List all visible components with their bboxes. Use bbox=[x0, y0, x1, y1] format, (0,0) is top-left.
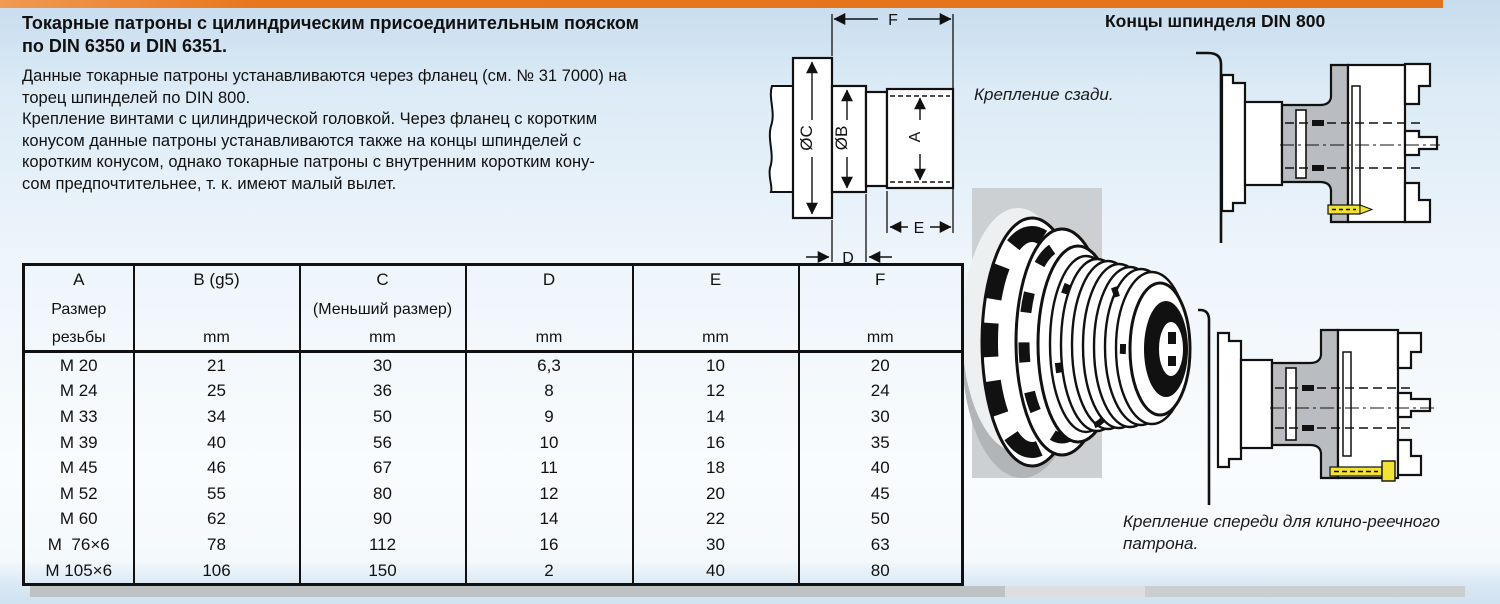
cell-thread: M 76×6 bbox=[24, 532, 134, 558]
col-b-unit: mm bbox=[203, 329, 230, 347]
cell-thread: M 105×6 bbox=[24, 558, 134, 585]
cell-e: 14 bbox=[633, 404, 799, 430]
cell-c: 112 bbox=[300, 532, 466, 558]
cell-thread: M 45 bbox=[24, 455, 134, 481]
cell-e: 30 bbox=[633, 532, 799, 558]
col-header-e: E mm bbox=[633, 265, 799, 352]
caption-front-line2: патрона. bbox=[1123, 533, 1440, 555]
caption-front-line1: Крепление спереди для клино-реечного bbox=[1123, 511, 1440, 533]
cell-e: 16 bbox=[633, 430, 799, 456]
col-d-letter: D bbox=[543, 270, 555, 290]
cell-thread: M 39 bbox=[24, 430, 134, 456]
cell-d: 6,3 bbox=[466, 352, 633, 379]
cell-thread: M 33 bbox=[24, 404, 134, 430]
dim-label-oc: ØC bbox=[797, 125, 816, 151]
intro-text-block: Токарные патроны с цилиндрическим присое… bbox=[22, 12, 639, 195]
col-e-letter: E bbox=[710, 270, 721, 290]
dimensions-table: A Размер резьбы B (g5) mm C (Меньший раз… bbox=[22, 263, 964, 586]
cell-c: 36 bbox=[300, 379, 466, 405]
cell-f: 63 bbox=[799, 532, 963, 558]
dim-label-ob: ØB bbox=[832, 126, 851, 151]
cell-f: 20 bbox=[799, 352, 963, 379]
cell-c: 150 bbox=[300, 558, 466, 585]
col-a-sub2: резьбы bbox=[52, 329, 106, 347]
table-row: M 52 55 80 12 20 45 bbox=[24, 481, 963, 507]
table-row: M 39 40 56 10 16 35 bbox=[24, 430, 963, 456]
cell-d: 12 bbox=[466, 481, 633, 507]
cell-thread: M 20 bbox=[24, 352, 134, 379]
chuck-drawing-front bbox=[1195, 300, 1440, 510]
col-c-letter: C bbox=[376, 270, 388, 290]
dimension-diagram: F ØC ØB A E D bbox=[753, 5, 967, 270]
cell-d: 16 bbox=[466, 532, 633, 558]
cell-b: 25 bbox=[134, 379, 300, 405]
col-d-unit: mm bbox=[536, 329, 563, 347]
col-header-b: B (g5) mm bbox=[134, 265, 300, 352]
cell-e: 18 bbox=[633, 455, 799, 481]
cell-b: 55 bbox=[134, 481, 300, 507]
dim-label-e: E bbox=[914, 220, 925, 237]
cell-d: 9 bbox=[466, 404, 633, 430]
col-f-unit: mm bbox=[867, 329, 894, 347]
cell-e: 20 bbox=[633, 481, 799, 507]
chuck-drawing-rear bbox=[1190, 42, 1445, 247]
cell-b: 40 bbox=[134, 430, 300, 456]
page-title-line1: Токарные патроны с цилиндрическим присое… bbox=[22, 12, 639, 35]
cell-c: 50 bbox=[300, 404, 466, 430]
col-header-d: D mm bbox=[466, 265, 633, 352]
intro-line: коротким конусом, однако токарные патрон… bbox=[22, 152, 639, 174]
cell-f: 30 bbox=[799, 404, 963, 430]
table-row: M 45 46 67 11 18 40 bbox=[24, 455, 963, 481]
cell-f: 35 bbox=[799, 430, 963, 456]
dim-label-f: F bbox=[888, 12, 898, 29]
cell-d: 11 bbox=[466, 455, 633, 481]
cell-c: 90 bbox=[300, 507, 466, 533]
table-row: M 105×6 106 150 2 40 80 bbox=[24, 558, 963, 585]
chuck-rear-shapes bbox=[1196, 53, 1437, 243]
cell-d: 10 bbox=[466, 430, 633, 456]
col-b-letter: B (g5) bbox=[193, 270, 239, 290]
col-e-unit: mm bbox=[702, 329, 729, 347]
table-row: M 76×6 78 112 16 30 63 bbox=[24, 532, 963, 558]
cell-f: 80 bbox=[799, 558, 963, 585]
cell-thread: M 24 bbox=[24, 379, 134, 405]
bottom-divider-bar bbox=[30, 586, 1005, 597]
cell-f: 45 bbox=[799, 481, 963, 507]
table-header-row: A Размер резьбы B (g5) mm C (Меньший раз… bbox=[24, 265, 963, 352]
cell-b: 78 bbox=[134, 532, 300, 558]
col-header-c: C (Меньший размер) mm bbox=[300, 265, 466, 352]
col-a-sub1: Размер bbox=[51, 301, 106, 319]
cell-d: 8 bbox=[466, 379, 633, 405]
col-a-letter: A bbox=[73, 270, 84, 290]
page-title: Токарные патроны с цилиндрическим присое… bbox=[22, 12, 639, 58]
cell-c: 67 bbox=[300, 455, 466, 481]
catalog-page: Токарные патроны с цилиндрическим присое… bbox=[0, 0, 1500, 604]
cell-d: 2 bbox=[466, 558, 633, 585]
col-f-letter: F bbox=[875, 270, 885, 290]
intro-line: Данные токарные патроны устанавливаются … bbox=[22, 66, 639, 88]
cell-thread: M 52 bbox=[24, 481, 134, 507]
table-row: M 20 21 30 6,3 10 20 bbox=[24, 352, 963, 379]
cell-b: 46 bbox=[134, 455, 300, 481]
cell-e: 12 bbox=[633, 379, 799, 405]
page-title-line2: по DIN 6350 и DIN 6351. bbox=[22, 35, 639, 58]
cell-thread: M 60 bbox=[24, 507, 134, 533]
col-c-sub: (Меньший размер) bbox=[313, 301, 452, 319]
cell-e: 10 bbox=[633, 352, 799, 379]
bottom-divider-bar-right bbox=[1145, 586, 1465, 597]
cell-c: 80 bbox=[300, 481, 466, 507]
table-row: M 33 34 50 9 14 30 bbox=[24, 404, 963, 430]
dim-label-a: A bbox=[907, 131, 924, 142]
cell-f: 40 bbox=[799, 455, 963, 481]
cell-c: 56 bbox=[300, 430, 466, 456]
cell-f: 50 bbox=[799, 507, 963, 533]
top-accent-bar bbox=[0, 0, 1443, 8]
table-row: M 60 62 90 14 22 50 bbox=[24, 507, 963, 533]
cell-b: 21 bbox=[134, 352, 300, 379]
cell-b: 34 bbox=[134, 404, 300, 430]
cell-d: 14 bbox=[466, 507, 633, 533]
cell-b: 106 bbox=[134, 558, 300, 585]
bottom-divider-bar-light bbox=[1005, 586, 1145, 597]
spindle-3d-render bbox=[960, 185, 1205, 485]
table-row: M 24 25 36 8 12 24 bbox=[24, 379, 963, 405]
spindle-3d-shapes bbox=[962, 208, 1190, 478]
intro-line: Крепление винтами с цилиндрической голов… bbox=[22, 109, 639, 131]
cell-e: 22 bbox=[633, 507, 799, 533]
intro-line: торец шпинделей по DIN 800. bbox=[22, 88, 639, 110]
cell-b: 62 bbox=[134, 507, 300, 533]
col-c-unit: mm bbox=[369, 329, 396, 347]
col-header-f: F mm bbox=[799, 265, 963, 352]
right-panel-title: Концы шпинделя DIN 800 bbox=[1105, 11, 1325, 32]
cell-f: 24 bbox=[799, 379, 963, 405]
cell-e: 40 bbox=[633, 558, 799, 585]
caption-rear-mounting: Крепление сзади. bbox=[974, 84, 1114, 106]
col-header-a: A Размер резьбы bbox=[24, 265, 134, 352]
intro-line: сом предпочтительнее, т. к. имеют малый … bbox=[22, 174, 639, 196]
intro-paragraph: Данные токарные патроны устанавливаются … bbox=[22, 66, 639, 195]
intro-line: конусом данные патроны устанавливаются т… bbox=[22, 131, 639, 153]
caption-front-mounting: Крепление спереди для клино-реечного пат… bbox=[1123, 511, 1440, 555]
cell-c: 30 bbox=[300, 352, 466, 379]
